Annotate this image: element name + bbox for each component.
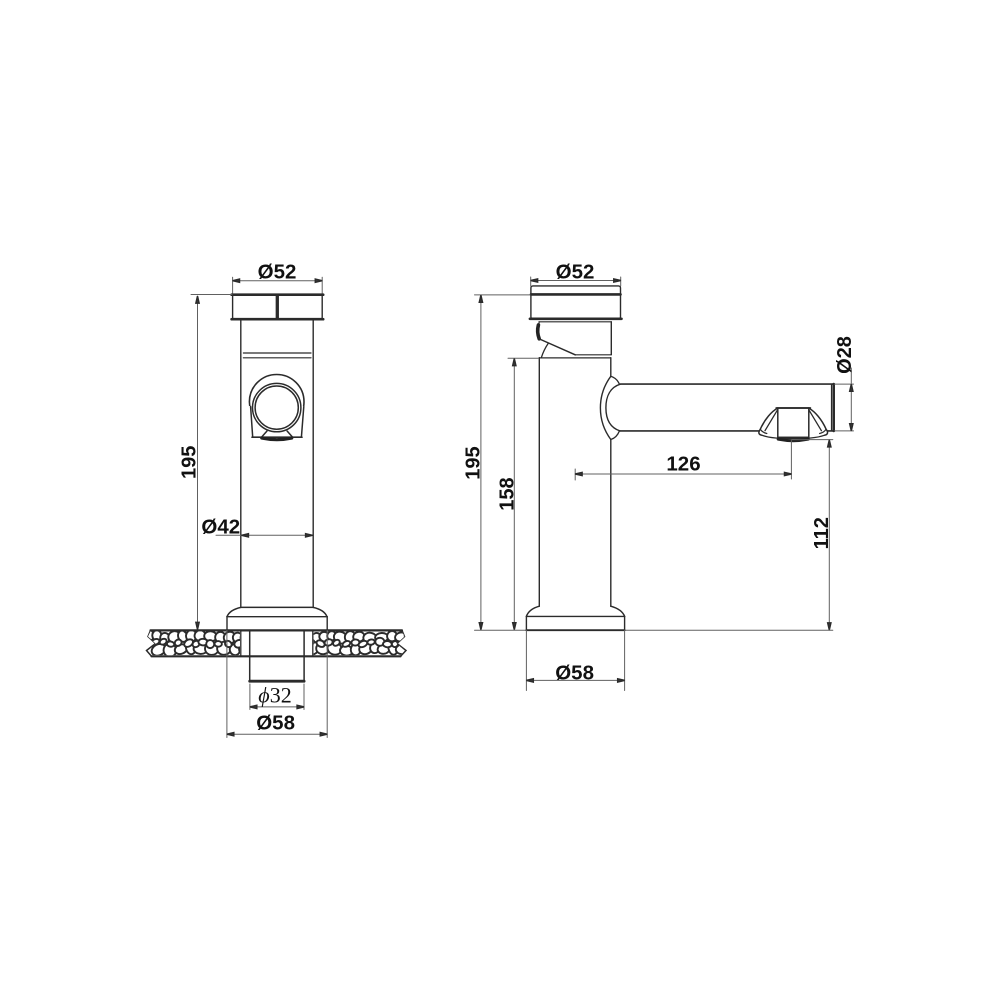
svg-text:195: 195 [463,446,485,479]
svg-text:Ø58: Ø58 [555,662,594,685]
svg-text:112: 112 [811,517,833,549]
svg-text:Ø52: Ø52 [556,261,595,284]
svg-text:Ø58: Ø58 [256,712,295,735]
svg-text:ϕ32: ϕ32 [258,683,291,708]
svg-text:Ø52: Ø52 [258,261,297,284]
svg-text:195: 195 [179,446,201,479]
svg-text:Ø28: Ø28 [834,336,856,374]
svg-text:126: 126 [666,453,700,476]
svg-text:Ø42: Ø42 [201,515,240,538]
svg-text:158: 158 [496,477,518,510]
